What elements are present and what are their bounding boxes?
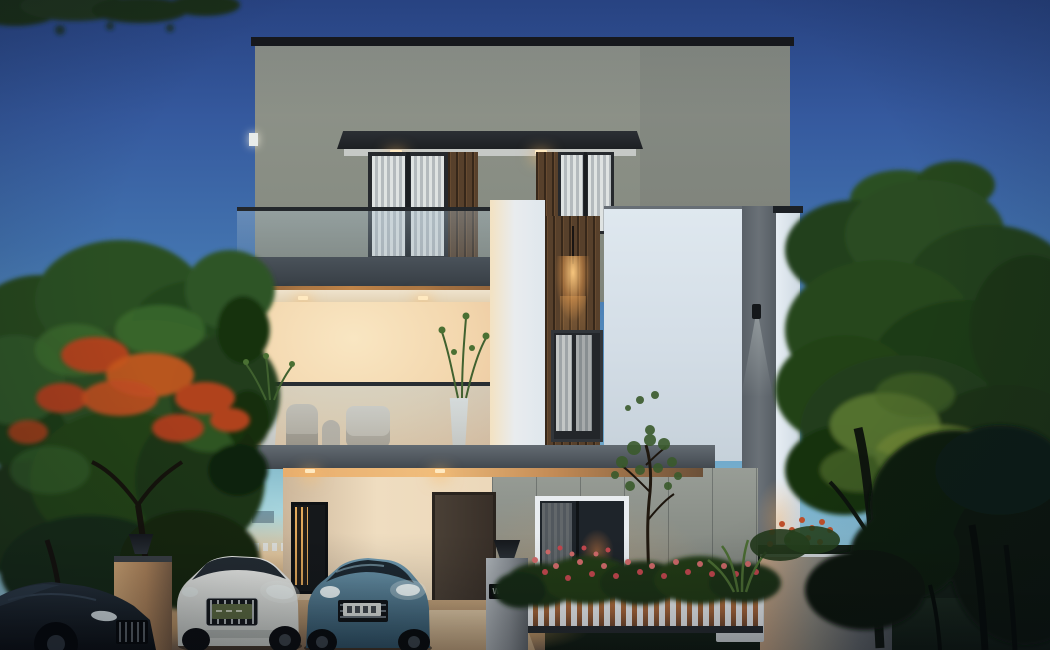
scene-villa-dusk-render: W-45: [0, 0, 1050, 650]
vignette: [0, 0, 1050, 650]
